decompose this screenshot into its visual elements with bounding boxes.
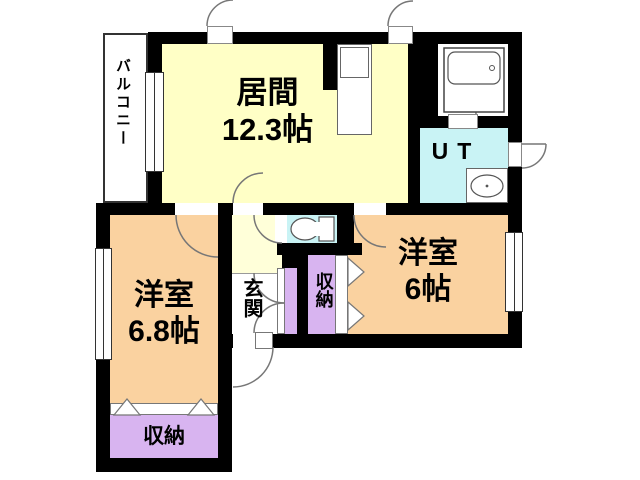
- door-opening-ut-exterior: [508, 142, 522, 167]
- bathtub-icon: [444, 48, 504, 112]
- door-opening-top-right: [388, 26, 413, 44]
- window-sash-line: [154, 73, 155, 171]
- bedroom-left-label: 洋室 6.8帖: [99, 278, 229, 350]
- window-bedroom-right: [505, 232, 523, 312]
- door-arc-entrance: [233, 347, 273, 387]
- living-room-size: 12.3帖: [185, 111, 350, 148]
- window-sash-line: [514, 233, 515, 311]
- closet-hall-door-strip: [335, 255, 348, 334]
- wall-shoe-right: [297, 268, 308, 334]
- utility-label: UT: [426, 138, 486, 166]
- living-room-label: 居間 12.3帖: [185, 74, 350, 148]
- wall-ut-left: [408, 128, 420, 203]
- wall-top: [148, 32, 522, 44]
- toilet-area: [287, 215, 337, 243]
- door-arc-top-left: [207, 0, 233, 26]
- window-living-balcony: [145, 72, 164, 172]
- floor-plan: 居間 12.3帖 バルコニー UT 洋室 6帖 洋室 6.8帖 玄関 収納 収納: [0, 0, 640, 480]
- shoe-closet-area: [284, 268, 297, 334]
- bedroom-left-name: 洋室: [99, 278, 229, 314]
- shoe-closet-door-strip: [277, 268, 285, 334]
- entrance-door-leaf: [255, 332, 273, 349]
- wall-bath-living: [408, 44, 438, 128]
- door-opening-toilet: [275, 215, 287, 243]
- door-opening-top-left: [207, 26, 233, 44]
- door-arc-ut-exterior: [522, 144, 546, 168]
- door-arc-bathroom: [448, 86, 476, 114]
- wall-under-toilet: [277, 243, 362, 255]
- balcony-label: バルコニー: [113, 58, 131, 148]
- door-opening-bedroom-left: [175, 203, 218, 215]
- wall-toilet-pillar: [337, 215, 354, 243]
- entrance-label: 玄関: [239, 278, 263, 318]
- bedroom-right-size: 6帖: [363, 272, 493, 308]
- bedroom-left-size: 6.8帖: [99, 314, 229, 350]
- wall-middle-band: [96, 203, 522, 215]
- closet-hall-label: 収納: [312, 272, 334, 308]
- wall-shoe-top: [282, 255, 308, 268]
- washbasin-cabinet: [466, 168, 508, 203]
- door-opening-bathroom: [448, 114, 478, 129]
- closet-bedroom-door-strip: [110, 403, 218, 415]
- door-opening-bedroom-right: [354, 203, 386, 215]
- wall-bottom-left: [96, 458, 232, 472]
- door-opening-living-hall: [233, 203, 263, 215]
- bedroom-right-label: 洋室 6帖: [363, 236, 493, 308]
- living-room-name: 居間: [185, 74, 350, 111]
- door-arc-top-right: [388, 1, 413, 26]
- bedroom-right-name: 洋室: [363, 236, 493, 272]
- closet-bedroom-label: 収納: [110, 424, 218, 449]
